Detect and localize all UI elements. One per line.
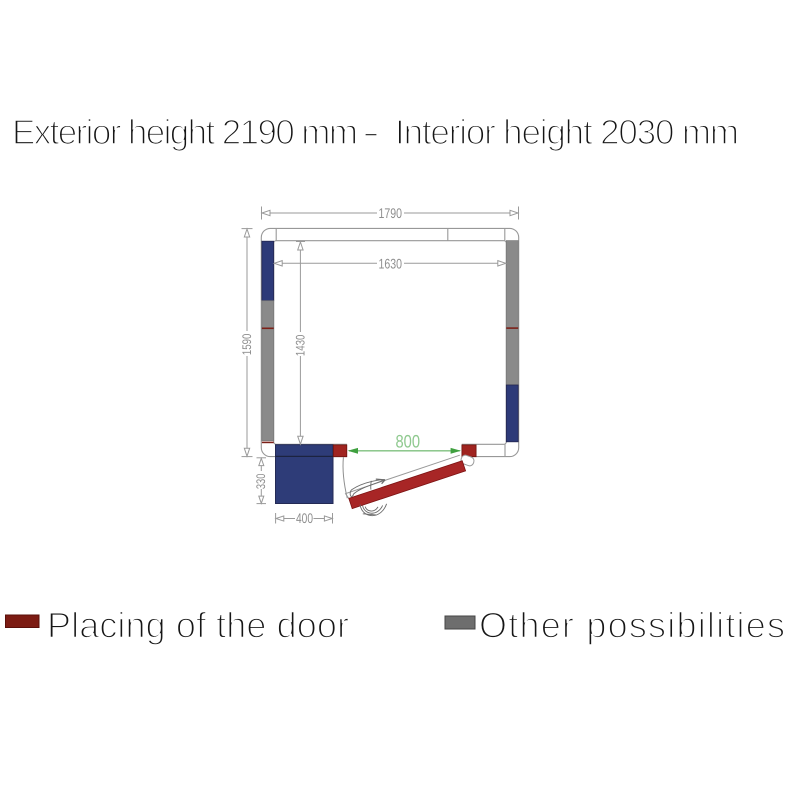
svg-text:330: 330 xyxy=(254,474,268,490)
svg-text:1590: 1590 xyxy=(240,334,254,356)
svg-text:Placing of the door: Placing of the door xyxy=(47,605,349,646)
svg-text:1630: 1630 xyxy=(379,255,403,271)
svg-text:1790: 1790 xyxy=(379,205,403,221)
svg-text:800: 800 xyxy=(396,432,421,452)
svg-text:400: 400 xyxy=(296,510,313,526)
svg-text:Interior height 2030 mm: Interior height 2030 mm xyxy=(395,113,739,152)
svg-text:1430: 1430 xyxy=(294,335,308,357)
svg-text:-: - xyxy=(362,113,380,152)
svg-text:Other possibilities: Other possibilities xyxy=(479,605,785,646)
svg-text:Exterior height 2190 mm: Exterior height 2190 mm xyxy=(12,113,358,152)
